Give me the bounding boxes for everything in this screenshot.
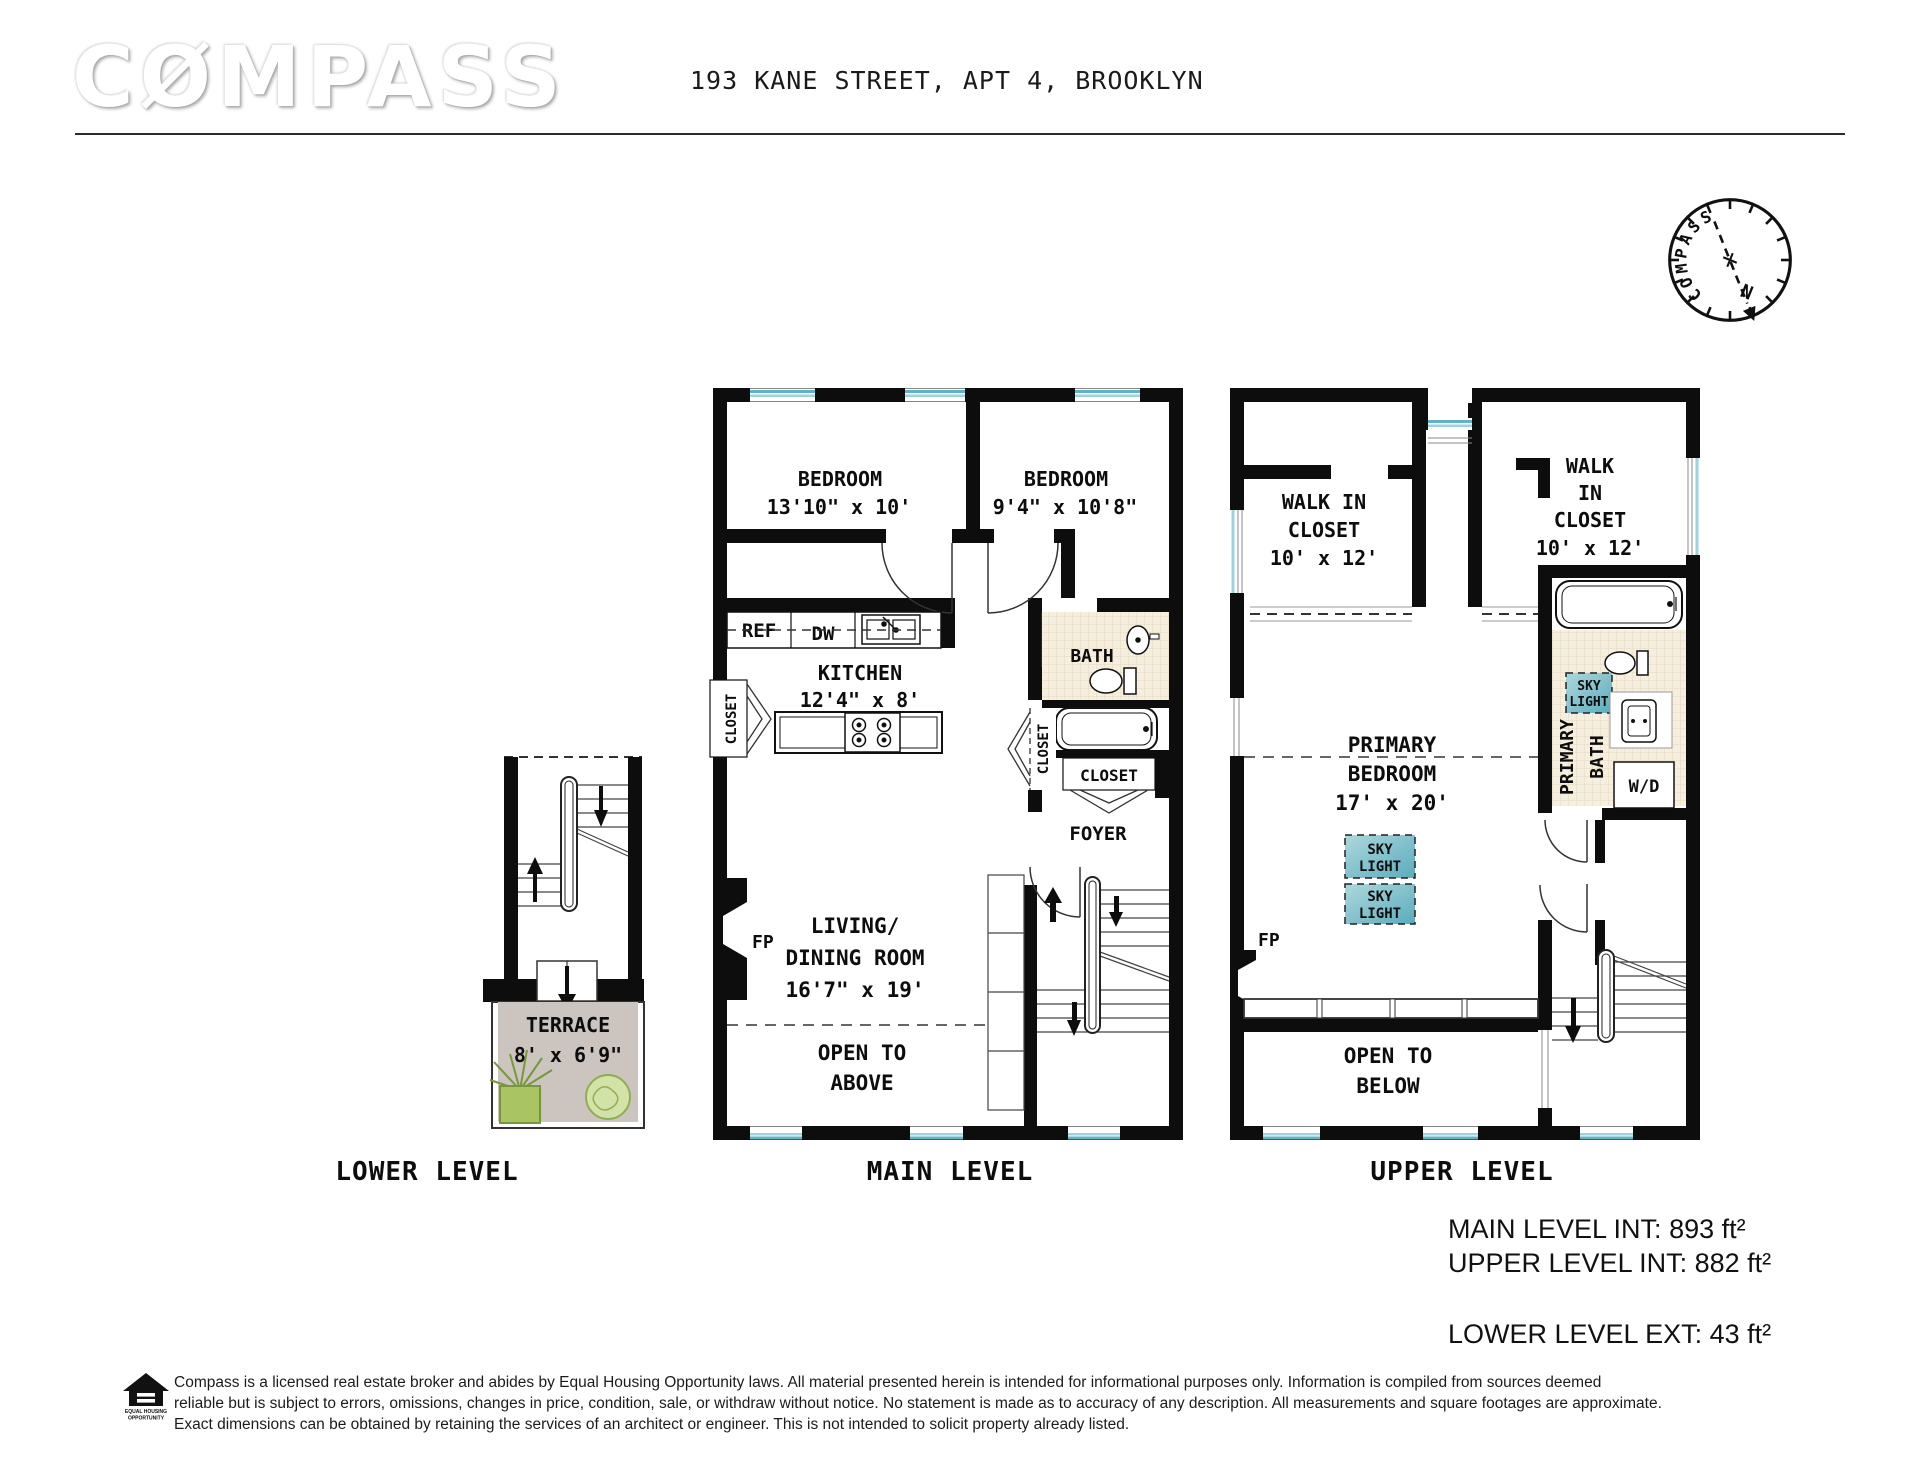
bedroom1-dims: 13'10" x 10' (767, 495, 912, 519)
disclaimer-line-1: Compass is a licensed real estate broker… (174, 1372, 1662, 1393)
closet-foyer-bifold-icon (1070, 790, 1148, 813)
disclaimer-line-2: reliable but is subject to errors, omiss… (174, 1393, 1662, 1414)
bedroom-skylight2-label-2: LIGHT (1359, 906, 1401, 922)
closet-left-label: CLOSET (724, 694, 740, 745)
main-level-plan: REF DW KITCHEN 12'4" x 8' (690, 370, 1200, 1160)
closet-foyer-label: CLOSET (1080, 766, 1138, 785)
wic-right-dims: 10' x 12' (1536, 536, 1644, 560)
upper-stairs (1552, 950, 1686, 1043)
upper-stair-railing (1598, 950, 1614, 1042)
primary-bath-label-1: PRIMARY (1557, 719, 1578, 795)
main-level-area: MAIN LEVEL INT: 893 ft² (1448, 1212, 1771, 1246)
bedroom-skylight2-label-1: SKY (1367, 889, 1393, 905)
wic-left-dims: 10' x 12' (1270, 546, 1378, 570)
bedroom2-dims: 9'4" x 10'8" (993, 495, 1138, 519)
bedroom1-label: BEDROOM (798, 467, 882, 491)
terrace-dims: 8' x 6'9" (514, 1043, 622, 1067)
upper-bathtub-icon (1556, 581, 1682, 628)
wic-left-label-1: WALK IN (1282, 490, 1366, 514)
closet-hall-bifold-icon (1008, 712, 1030, 786)
page-title: 193 KANE STREET, APT 4, BROOKLYN (690, 66, 1204, 95)
eho-label-1: EQUAL HOUSING (125, 1409, 167, 1415)
closet-foyer: CLOSET (1063, 758, 1155, 813)
lower-level-plan: TERRACE 8' x 6'9" (300, 740, 700, 1160)
closet-hall-label: CLOSET (1036, 724, 1052, 775)
open-below-2: BELOW (1356, 1074, 1420, 1098)
main-bookshelf (988, 875, 1024, 1110)
living-dims: 16'7" x 19' (785, 978, 924, 1002)
upper-down-arrow-icon (1565, 998, 1581, 1043)
main-stair-railing (1085, 877, 1100, 1033)
foyer-label: FOYER (1069, 823, 1127, 845)
disclaimer-text: Compass is a licensed real estate broker… (174, 1372, 1662, 1435)
terrace-label: TERRACE (526, 1013, 610, 1037)
lower-level-label: LOWER LEVEL (307, 1157, 547, 1187)
open-above-2: ABOVE (830, 1071, 893, 1095)
equal-housing-logo-icon: EQUAL HOUSING OPPORTUNITY (122, 1372, 170, 1422)
kitchen: REF DW KITCHEN 12'4" x 8' (727, 612, 942, 753)
wic-left-label-2: CLOSET (1288, 518, 1360, 542)
wic-right-label-2: IN (1578, 481, 1602, 505)
closet-left: CLOSET (710, 680, 771, 757)
header-divider (75, 133, 1845, 135)
fp-main-label: FP (752, 932, 774, 953)
primary-bath-label-2: BATH (1587, 735, 1608, 778)
washer-dryer: W/D (1614, 762, 1674, 808)
lower-stair-railing (561, 777, 577, 911)
bath-label: BATH (1070, 646, 1113, 667)
living-label-1: LIVING/ (811, 914, 900, 938)
open-above-1: OPEN TO (818, 1041, 907, 1065)
upper-toilet-icon (1605, 651, 1648, 675)
closet-hall: CLOSET (1008, 708, 1056, 790)
toilet-icon (1090, 668, 1136, 694)
main-level-label: MAIN LEVEL (830, 1157, 1070, 1187)
bedroom-skylight1-label-2: LIGHT (1359, 859, 1401, 875)
lower-down-arrow-icon (594, 786, 608, 827)
primary-bedroom-dims: 17' x 20' (1335, 791, 1449, 815)
upper-balustrade (1244, 999, 1538, 1018)
bedroom-skylight1-label-1: SKY (1367, 842, 1393, 858)
compass-center-cross (1721, 251, 1740, 270)
fireplace-main-icon (713, 878, 747, 1000)
north-label: N (1737, 281, 1755, 305)
bedroom-skylight-2: SKY LIGHT (1345, 884, 1415, 924)
bathtub-icon (1056, 708, 1157, 750)
bathroom: BATH (1042, 612, 1169, 750)
primary-bedroom-label-2: BEDROOM (1348, 762, 1437, 786)
eho-label-2: OPPORTUNITY (128, 1416, 165, 1422)
main-down-arrow2-icon (1067, 1002, 1081, 1036)
upper-level-area: UPPER LEVEL INT: 882 ft² (1448, 1246, 1771, 1280)
stove-icon (845, 713, 900, 752)
bath-skylight-label-1: SKY (1577, 679, 1601, 694)
wd-label: W/D (1629, 777, 1660, 797)
stair-side-rail (1542, 1030, 1548, 1108)
dw-label: DW (812, 623, 835, 645)
upper-level-plan: WALK IN CLOSET 10' x 12' WALK IN CLOSET … (1210, 370, 1710, 1160)
open-below-1: OPEN TO (1344, 1044, 1433, 1068)
square-footage-summary: MAIN LEVEL INT: 893 ft² UPPER LEVEL INT:… (1448, 1212, 1771, 1351)
closet-left-bifold-icon (747, 684, 771, 754)
bath-skylight: SKY LIGHT (1566, 673, 1612, 713)
ref-label: REF (742, 620, 776, 642)
main-stairs (1037, 877, 1169, 1036)
terrace: TERRACE 8' x 6'9" (490, 1002, 644, 1128)
lower-level-area: LOWER LEVEL EXT: 43 ft² (1448, 1317, 1771, 1351)
bedroom2-label: BEDROOM (1024, 467, 1108, 491)
main-down-arrow-icon (1109, 896, 1123, 927)
wic-right-label-3: CLOSET (1554, 508, 1626, 532)
primary-bedroom-label-1: PRIMARY (1348, 733, 1437, 757)
upper-thresholds (1250, 607, 1538, 621)
bedroom-skylight-1: SKY LIGHT (1345, 835, 1415, 878)
bush-icon (586, 1075, 630, 1119)
floorplan-page: CØMPASS 193 KANE STREET, APT 4, BROOKLYN… (0, 0, 1920, 1484)
upper-sink-icon (1610, 692, 1672, 748)
compass-rose-icon: COMPASS N (1652, 182, 1808, 338)
kitchen-dims: 12'4" x 8' (800, 688, 920, 712)
kitchen-island (775, 712, 942, 753)
kitchen-label: KITCHEN (818, 661, 902, 685)
upper-level-label: UPPER LEVEL (1342, 1157, 1582, 1187)
disclaimer-line-3: Exact dimensions can be obtained by reta… (174, 1414, 1662, 1435)
wic-right-label-1: WALK (1566, 454, 1614, 478)
compass-logo: CØMPASS (72, 28, 567, 126)
living-label-2: DINING ROOM (785, 946, 924, 970)
bath-skylight-label-2: LIGHT (1569, 695, 1608, 710)
upper-doors (1540, 820, 1587, 932)
fp-upper-label: FP (1258, 930, 1280, 951)
